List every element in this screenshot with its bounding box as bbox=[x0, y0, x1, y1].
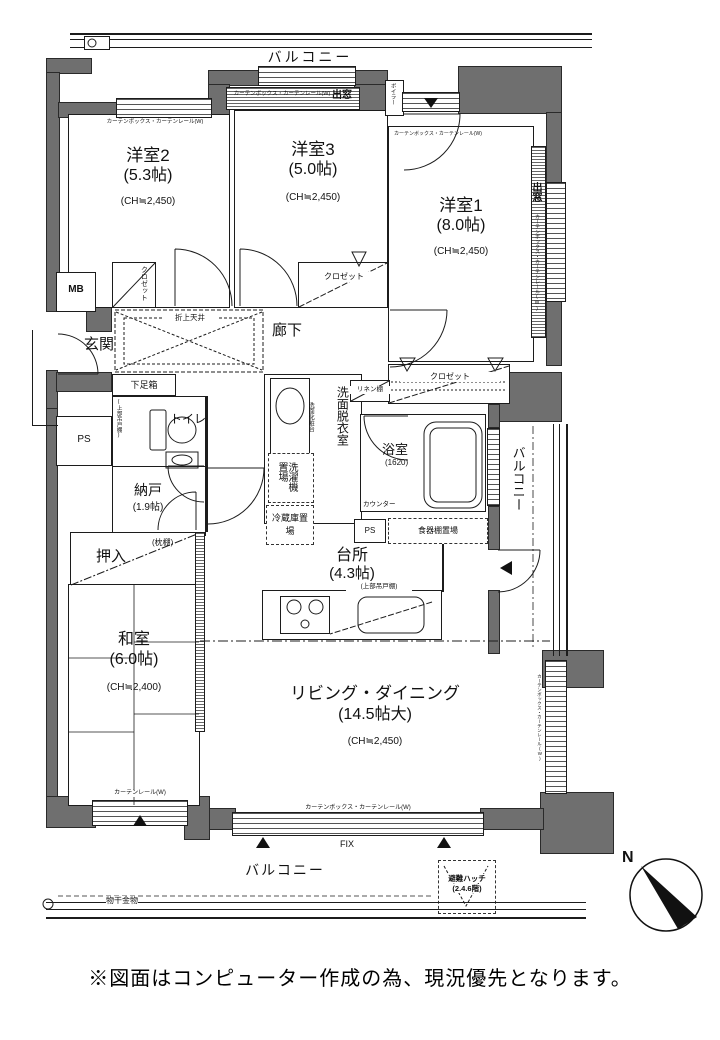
door-arc-corridor bbox=[208, 468, 264, 524]
closet-diagonal bbox=[299, 263, 387, 307]
closet-y2-label: クロゼット bbox=[139, 266, 147, 306]
footnote: ※図面はコンピューター作成の為、現況優先となります。 bbox=[0, 962, 720, 991]
floorplan: N バルコニー カーテンボックス・カーテンレール(W) カーテンボックス・カーテ… bbox=[0, 0, 720, 940]
senmen-label: 洗面脱衣室 bbox=[335, 386, 349, 472]
curtain-box-living-bottom-label: カーテンボックス・カーテンレール(W) bbox=[290, 805, 426, 812]
senmen-keshodai-label: 洗面化粧台 bbox=[306, 402, 313, 458]
oshiire-label: 押入 bbox=[96, 548, 126, 566]
toilet-handwash-basin bbox=[172, 455, 192, 465]
nando-size: (1.9帖) bbox=[118, 502, 178, 514]
getabako-label: 下足箱 bbox=[114, 380, 174, 391]
oriage-tenjo-box-inner bbox=[124, 318, 254, 364]
rouka-label: 廊下 bbox=[272, 322, 302, 340]
opening-triangle-up bbox=[437, 837, 451, 848]
balcony-top-label: バルコニー bbox=[250, 49, 370, 66]
yoshitsu2-ch: (CH≒2,450) bbox=[98, 196, 198, 208]
hinan-hatch-label: 避難ハッチ bbox=[439, 874, 495, 883]
balcony-right-label: バルコニー bbox=[510, 446, 526, 550]
washitsu-name: 和室 bbox=[84, 630, 184, 649]
curtain-box-y1-top-label: カーテンボックス・カーテンレール(W) bbox=[394, 131, 468, 137]
living-name: リビング・ダイニング bbox=[250, 684, 500, 704]
opening-triangle-up bbox=[256, 837, 270, 848]
yoshitsu1-size: (8.0帖) bbox=[406, 216, 516, 235]
monohoshi-label: 物干金物 bbox=[106, 896, 138, 906]
oshiire-diagonal bbox=[71, 534, 197, 585]
oriage-tenjo-label: 折上天井 bbox=[162, 313, 218, 322]
stove-burner bbox=[287, 600, 301, 614]
cupboard-label: 食器棚置場 bbox=[392, 526, 484, 536]
demado-top-label: 出窓 bbox=[332, 90, 352, 102]
balcony-drain-circle bbox=[88, 39, 96, 47]
door-arc-balcony-right bbox=[498, 550, 540, 592]
curtain-box-y2-label: カーテンボックス・カーテンレール(W) bbox=[96, 119, 214, 126]
opening-triangle-left bbox=[500, 561, 512, 575]
nando-label: 納戸 bbox=[118, 482, 178, 499]
door-arc-yoshitsu2 bbox=[175, 249, 232, 306]
stove-burner bbox=[301, 620, 309, 628]
kitchen-size: (4.3帖) bbox=[312, 565, 392, 583]
hanging-cupboard-toilet-label: (上部吊戸棚) bbox=[115, 399, 122, 455]
yoshitsu2-size: (5.3帖) bbox=[98, 166, 198, 185]
kitchen-name: 台所 bbox=[312, 546, 392, 565]
toilet-tank bbox=[150, 410, 166, 450]
door-arc-yoshitsu1 bbox=[390, 310, 447, 367]
counter-diagonal bbox=[330, 602, 432, 634]
yoshitsu3-name: 洋室3 bbox=[258, 140, 368, 160]
opening-triangle-up bbox=[133, 815, 147, 826]
yoshitsu1-name: 洋室1 bbox=[406, 196, 516, 216]
balcony-bottom-label: バルコニー bbox=[230, 862, 340, 879]
hinan-hatch-floors-label: (2.4.6階) bbox=[441, 884, 493, 893]
ps-left-label: PS bbox=[56, 434, 112, 446]
washitsu-size: (6.0帖) bbox=[84, 650, 184, 669]
fridge-label: 冷蔵庫置場 bbox=[272, 512, 308, 537]
yoshitsu3-ch: (CH≒2,450) bbox=[258, 192, 368, 204]
bath-label: 浴室 bbox=[382, 442, 408, 458]
bathtub-inner bbox=[430, 428, 476, 502]
curtain-box-y1-right-label: カーテンボックス・カーテンレール(W) bbox=[534, 214, 540, 326]
compass-n-label: N bbox=[622, 849, 634, 866]
stove-burner bbox=[309, 600, 323, 614]
closet-dash bbox=[391, 382, 507, 390]
boiler-label: ボイラー bbox=[389, 83, 396, 115]
closet-y3-label: クロゼット bbox=[308, 272, 380, 282]
genkan-label: 玄関 bbox=[84, 336, 114, 354]
compass: N bbox=[622, 849, 702, 931]
curtain-box-y3-label: カーテンボックス・カーテンレール(W) bbox=[232, 91, 332, 98]
floorplan-page: N バルコニー カーテンボックス・カーテンレール(W) カーテンボックス・カーテ… bbox=[0, 0, 720, 1040]
living-ch: (CH≒2,450) bbox=[250, 736, 500, 748]
yoshitsu2-name: 洋室2 bbox=[98, 146, 198, 166]
counter-label: カウンター bbox=[363, 501, 396, 509]
demado-right-label: 出窓 bbox=[529, 182, 541, 210]
bath-size: (1620) bbox=[385, 458, 408, 468]
curtain-box-living-right-label: カーテンボックス・カーテンレール(W) bbox=[537, 674, 542, 784]
makuradana-label: (枕棚) bbox=[152, 538, 173, 548]
closet-diagonal bbox=[113, 263, 155, 307]
tatami-lines bbox=[69, 585, 199, 805]
balcony-drain-circle bbox=[43, 899, 53, 909]
fix-label: FIX bbox=[340, 839, 354, 850]
living-size: (14.5帖大) bbox=[250, 705, 500, 724]
opening-triangle-down bbox=[424, 98, 438, 108]
yoshitsu3-size: (5.0帖) bbox=[258, 160, 368, 179]
vanity-basin bbox=[276, 388, 304, 424]
linen-shelf-label: リネン棚 bbox=[350, 386, 390, 394]
compass-needle bbox=[641, 866, 697, 929]
washitsu-ch: (CH≒2,400) bbox=[84, 682, 184, 694]
door-arc-yoshitsu3 bbox=[240, 249, 297, 306]
ps-kitchen-label: PS bbox=[354, 526, 386, 536]
mb-label: MB bbox=[56, 284, 96, 296]
washer-label: 洗濯機置場 bbox=[276, 462, 296, 494]
toilet-label: トイレ bbox=[170, 412, 206, 426]
door-arc-balcony-yoshitsu1 bbox=[404, 114, 460, 170]
yoshitsu1-ch: (CH≒2,450) bbox=[406, 246, 516, 258]
closet-y1-label: クロゼット bbox=[400, 372, 500, 382]
curtain-rail-washitsu-label: カーテンレール(W) bbox=[100, 790, 180, 797]
bathtub bbox=[424, 422, 482, 508]
hanging-cupboard-kitchen-label: (上部吊戸棚) bbox=[346, 583, 412, 591]
